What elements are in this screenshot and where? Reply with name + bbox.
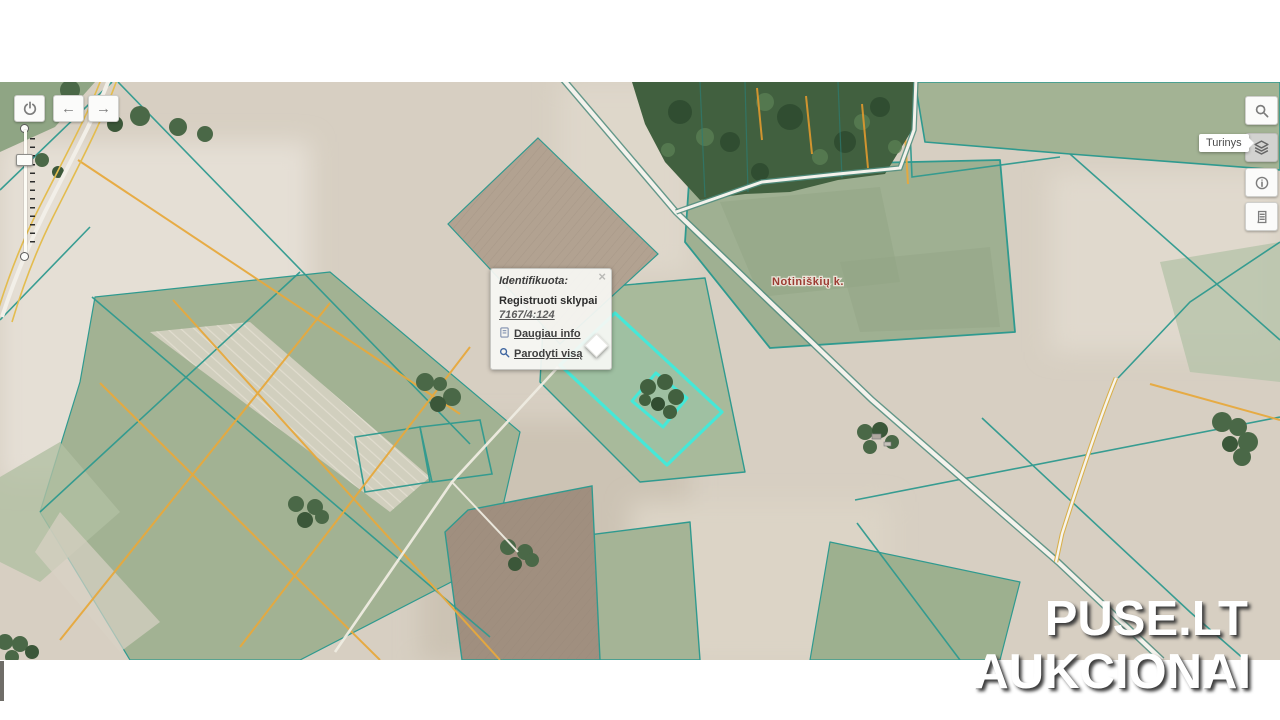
more-info-link[interactable]: Daugiau info — [499, 327, 603, 341]
watermark-line2: AUKCIONAI — [973, 648, 1251, 697]
village-label: Notiniškių k. — [772, 276, 844, 288]
history-forward-button[interactable]: → — [88, 95, 119, 122]
map-canvas[interactable]: Notiniškių k. — [0, 82, 1280, 660]
more-info-label: Daugiau info — [514, 328, 581, 340]
search-icon — [1254, 103, 1270, 119]
popup-section-title: Registruoti sklypai — [499, 295, 603, 307]
page-info-icon — [499, 327, 510, 341]
top-letterbox-bar — [0, 0, 1280, 82]
layers-icon — [1253, 139, 1270, 156]
popup-close-button[interactable]: × — [598, 270, 606, 284]
back-arrow-icon: ← — [61, 100, 76, 117]
info-icon — [1254, 175, 1270, 191]
bottom-left-strip — [0, 661, 4, 701]
popup-title: Identifikuota: — [499, 275, 603, 287]
magnifier-icon — [499, 347, 510, 361]
legend-icon — [1254, 209, 1270, 225]
layers-tooltip-label: Turinys — [1206, 137, 1242, 149]
layers-tooltip: Turinys — [1199, 134, 1249, 152]
watermark-line1: PUSE.LT — [1045, 595, 1248, 644]
zoom-slider-bottom-end — [20, 252, 29, 261]
search-button[interactable] — [1245, 96, 1278, 125]
legend-button[interactable] — [1245, 202, 1278, 231]
zoom-slider-handle[interactable] — [16, 154, 33, 166]
parcel-code-link[interactable]: 7167/4:124 — [499, 309, 555, 321]
show-all-label: Parodyti visą — [514, 348, 582, 360]
zoom-slider[interactable] — [14, 122, 40, 262]
history-back-button[interactable]: ← — [53, 95, 84, 122]
info-button[interactable] — [1245, 168, 1278, 197]
map-viewport[interactable]: Notiniškių k. — [0, 82, 1280, 660]
forward-arrow-icon: → — [96, 100, 111, 117]
power-icon — [22, 101, 38, 117]
zoom-slider-track[interactable] — [24, 130, 27, 254]
power-button[interactable] — [14, 95, 45, 122]
